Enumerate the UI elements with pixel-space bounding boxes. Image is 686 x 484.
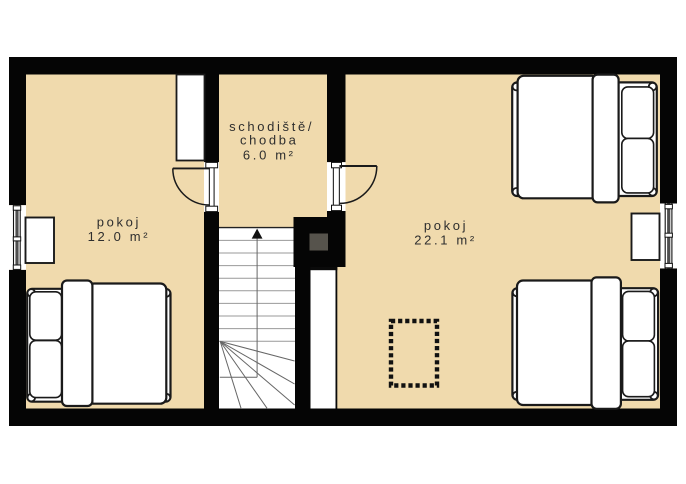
- svg-text:pokoj: pokoj: [424, 218, 468, 233]
- svg-text:22.1 m²: 22.1 m²: [414, 233, 477, 248]
- svg-text:6.0 m²: 6.0 m²: [243, 148, 296, 163]
- svg-text:pokoj: pokoj: [97, 214, 141, 229]
- svg-text:chodba: chodba: [240, 133, 299, 148]
- svg-text:12.0 m²: 12.0 m²: [88, 229, 151, 244]
